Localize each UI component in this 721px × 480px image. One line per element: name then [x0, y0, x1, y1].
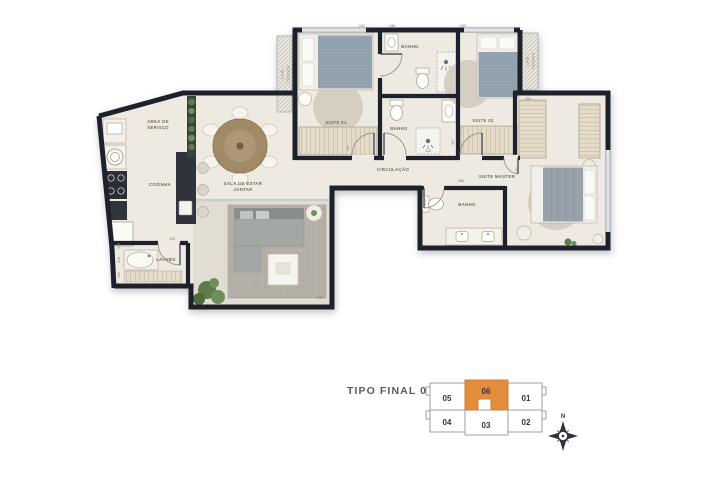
suite02-wardrobe: [461, 126, 517, 154]
plan-title: TIPO FINAL 06: [347, 385, 434, 397]
laje-right-label-2: TÉCNICA: [531, 52, 536, 69]
keyplan-label-05: 05: [443, 394, 452, 403]
suite01-stool: [299, 93, 312, 106]
key-plan: 05 06 01 04 03 02: [426, 380, 546, 435]
label-suite-master: SUITE MASTER: [479, 174, 516, 179]
keyplan-label-01: 01: [522, 394, 531, 403]
label-sala-1: SALA DE ESTAR: [224, 181, 263, 186]
keyplan-label-03: 03: [482, 421, 491, 430]
floor-plan: LAJE TÉCNICA LAJE TÉCNICA: [99, 24, 611, 310]
master-closet-left: [519, 100, 546, 158]
floorplan-svg: LAJE TÉCNICA LAJE TÉCNICA: [0, 0, 721, 480]
compass-center-dot: [562, 435, 565, 438]
keyplan-label-06: 06: [482, 387, 491, 396]
dimension-label: 135: [117, 243, 121, 249]
keyplan-tab: [542, 411, 546, 419]
suite02-bed: [477, 34, 519, 98]
dimension-label: 176: [515, 167, 519, 173]
sofa-seat: [234, 219, 304, 246]
stool: [198, 163, 209, 174]
sofa-pillow: [240, 211, 253, 219]
dimension-label: 148: [425, 149, 431, 153]
dimension-label: 240: [423, 199, 427, 205]
kitchen-green-divider: [187, 96, 196, 158]
island-sink: [179, 201, 192, 215]
master-pouf: [593, 234, 603, 244]
label-area-servico-2: SERVIÇO: [147, 125, 169, 130]
lavabo-sink: [127, 252, 153, 268]
keyplan-label-04: 04: [443, 418, 452, 427]
sofa-pillow: [256, 211, 269, 219]
dimension-label: 240: [359, 24, 365, 28]
dimension-label: 240: [317, 296, 323, 300]
dining-centerpiece: [237, 143, 244, 150]
label-area-servico-1: ÁREA DE: [147, 119, 169, 124]
suite01-wardrobe: [299, 127, 377, 155]
master-pouf: [517, 226, 531, 240]
master-closet-right: [579, 104, 600, 158]
sofa-chaise: [234, 246, 261, 272]
laje-tecnica-right: LAJE TÉCNICA: [522, 33, 538, 90]
laje-right-label-1: LAJE: [526, 56, 530, 66]
label-cozinha: COZINHA: [149, 182, 171, 187]
stool: [198, 207, 209, 218]
shower-head-icon: [426, 139, 430, 143]
label-circulacao: CIRCULAÇÃO: [377, 167, 410, 172]
label-banho-social: BANHO: [390, 126, 408, 131]
keyplan-tab: [426, 411, 430, 419]
label-lavabo: LAVABO: [156, 257, 176, 262]
lavabo-cabinet: [124, 271, 182, 282]
laje-tecnica-left: LAJE TÉCNICA: [277, 36, 292, 112]
master-bed: [531, 166, 597, 223]
washing-machine-drum: [107, 149, 123, 165]
keyplan-tab: [542, 387, 546, 395]
label-suite-02: SUITE 02: [472, 118, 494, 123]
label-suite-01: SUITE 01: [325, 120, 347, 125]
stool: [198, 185, 209, 196]
dimension-label: 146: [117, 257, 121, 263]
dimension-label: 245: [460, 24, 466, 28]
service-sink-basin: [107, 123, 122, 134]
label-sala-2: JANTAR: [233, 187, 253, 192]
toilet: [391, 106, 403, 121]
dimension-label: 107: [451, 139, 455, 145]
toilet: [417, 74, 429, 89]
suite01-bed: [299, 34, 373, 90]
keyplan-label-02: 02: [522, 418, 531, 427]
lavabo-faucet: [148, 255, 151, 258]
side-table-plant: [311, 210, 317, 216]
label-banho-suite01: BANHO: [401, 44, 419, 49]
coffee-table-tray: [276, 263, 290, 274]
dimension-label: 195: [169, 237, 175, 241]
dimension-label: 100: [117, 272, 121, 278]
compass-north-label: N: [561, 414, 565, 420]
floorplan-page: LAJE TÉCNICA LAJE TÉCNICA: [0, 0, 721, 480]
dimension-label: 148: [389, 24, 395, 28]
laje-left-label-2: TÉCNICA: [285, 65, 290, 82]
laje-left-label-1: LAJE: [280, 69, 284, 79]
dimension-label: 565: [458, 179, 464, 183]
shower-head-icon: [444, 60, 448, 64]
dimension-label: 250: [525, 97, 531, 101]
keyplan-tab: [426, 387, 430, 395]
compass-rose: N: [548, 414, 578, 451]
label-banho-master: BANHO: [458, 202, 476, 207]
dining-chair: [232, 107, 248, 119]
dimension-label: 107: [346, 145, 350, 151]
